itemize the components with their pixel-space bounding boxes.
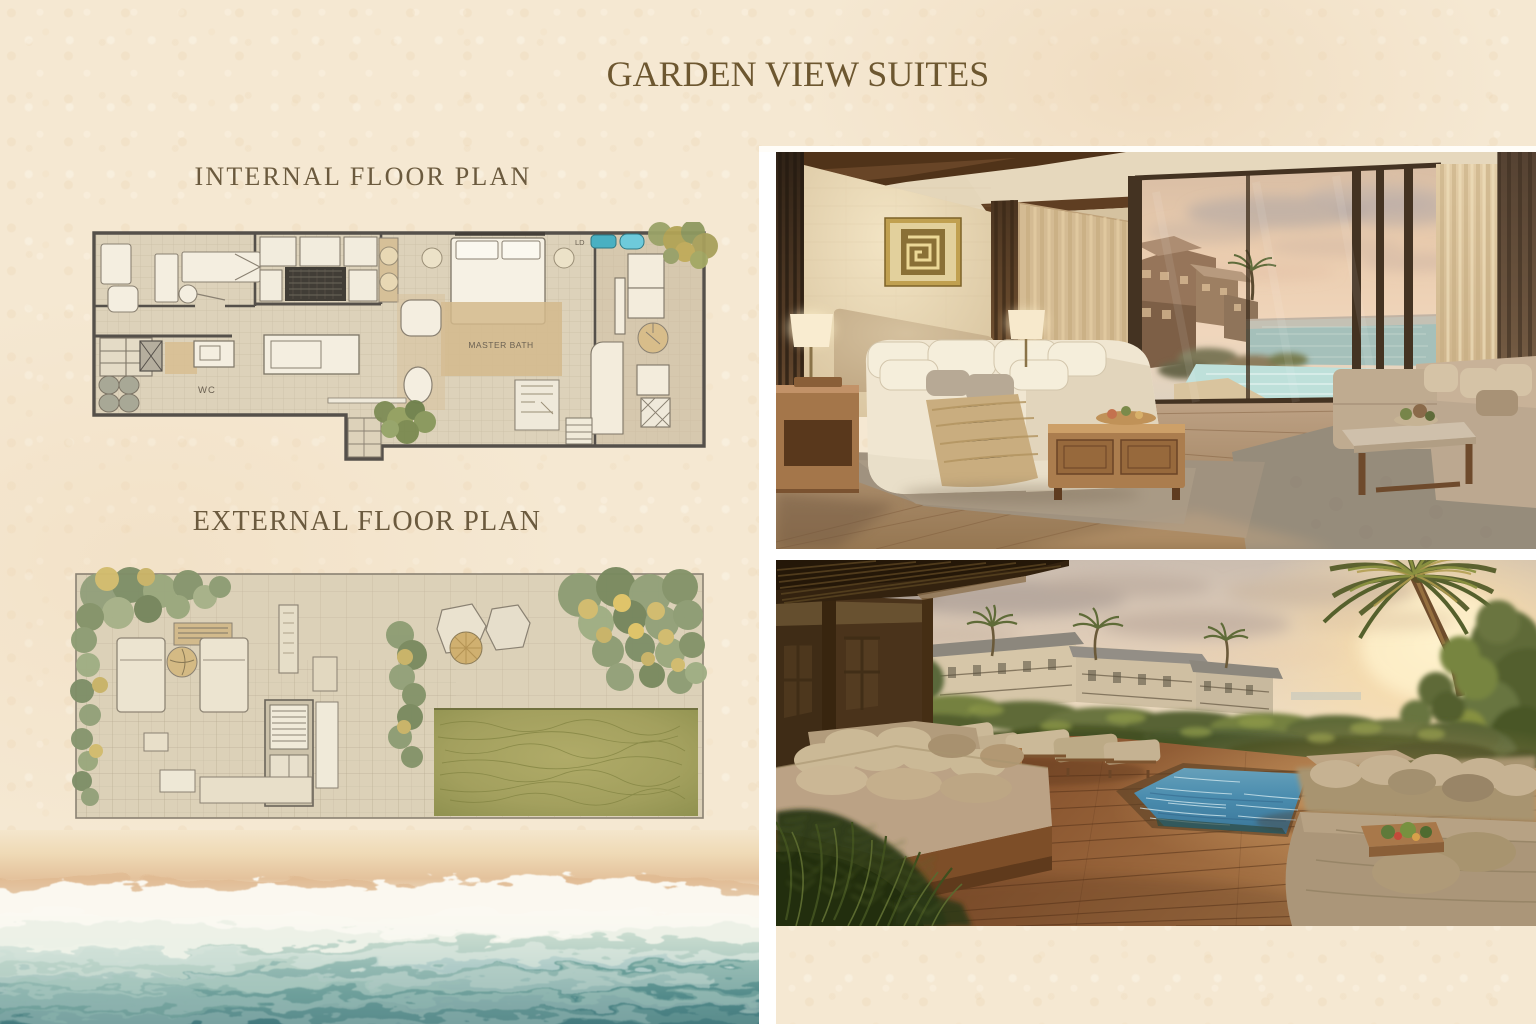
svg-text:WC: WC bbox=[198, 385, 216, 396]
svg-text:MASTER BATH: MASTER BATH bbox=[468, 340, 533, 350]
svg-text:LD: LD bbox=[575, 238, 585, 247]
